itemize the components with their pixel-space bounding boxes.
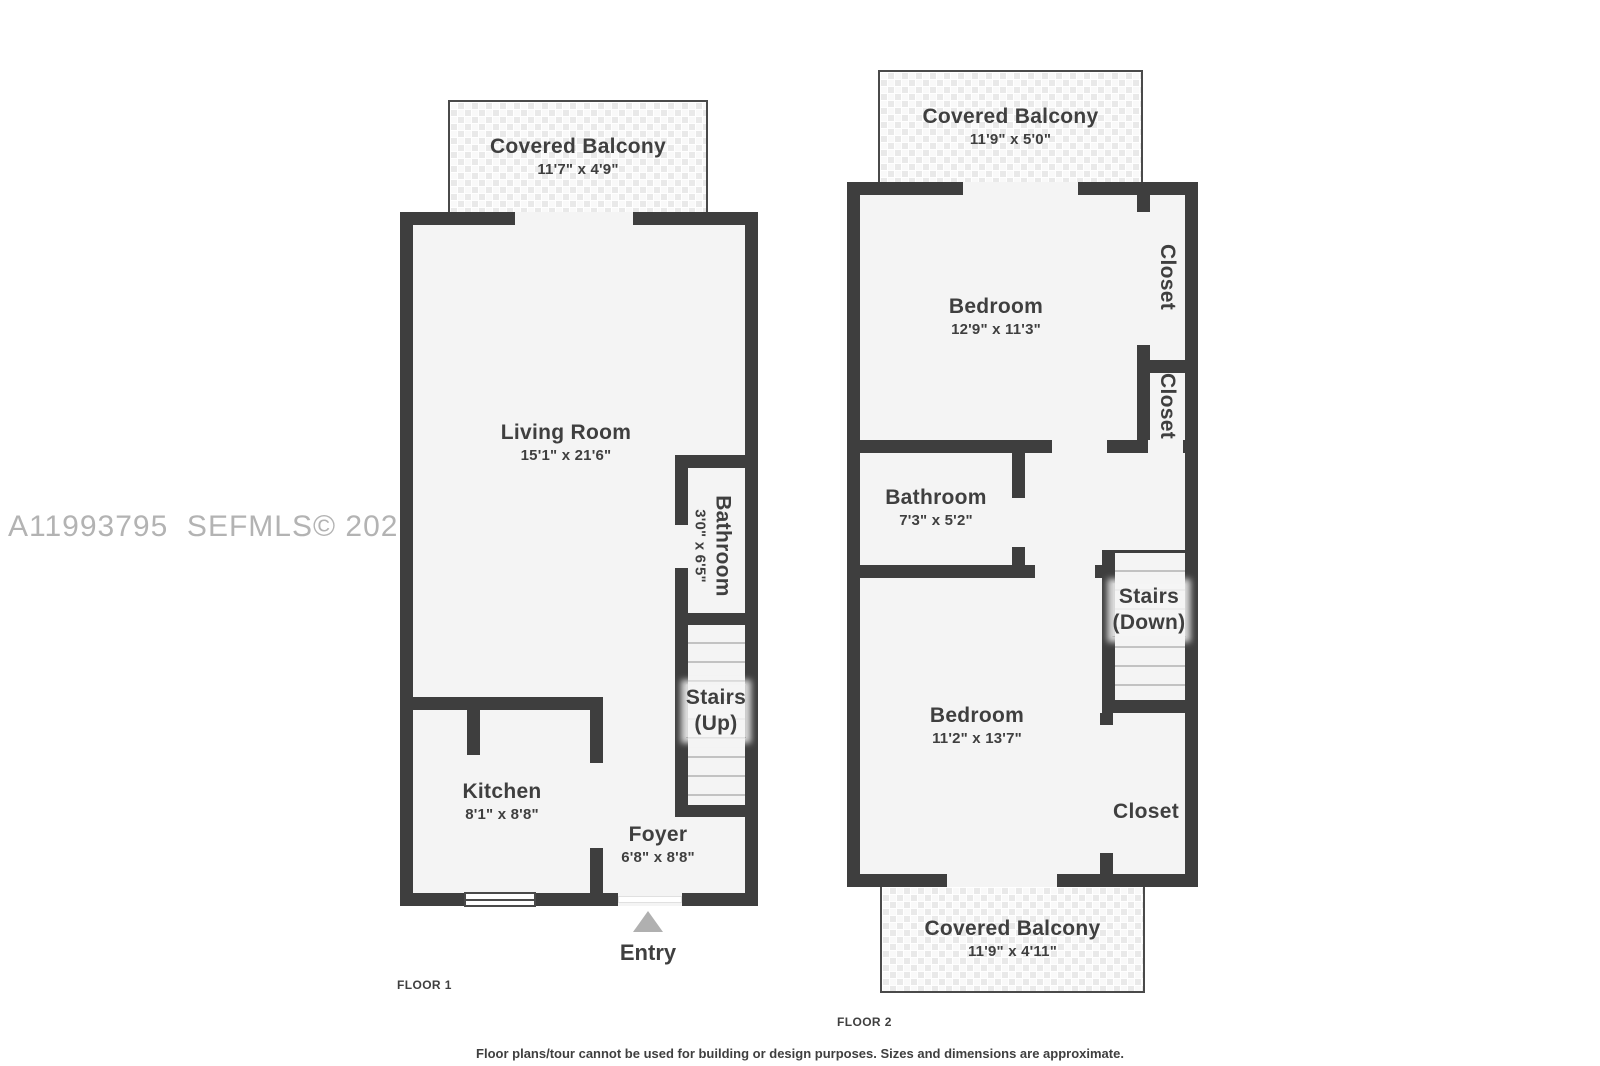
stairs-direction: (Up) bbox=[686, 711, 746, 737]
floor-plan-page: A11993795 SEFMLS© 2026 Covered Balcony 1… bbox=[0, 0, 1600, 1066]
wall-segment bbox=[590, 697, 603, 763]
room-dims: 11'2" x 13'7" bbox=[930, 729, 1024, 749]
window-mullion bbox=[466, 899, 534, 901]
room-stairs-up: Stairs (Up) bbox=[686, 685, 746, 738]
room-name: Closet bbox=[1113, 799, 1179, 825]
stairs-direction: (Down) bbox=[1113, 610, 1186, 636]
wall-segment bbox=[847, 874, 947, 887]
wall-segment bbox=[1100, 713, 1113, 725]
wall-segment bbox=[1102, 700, 1198, 713]
room-closet-bottom: Closet bbox=[1113, 799, 1179, 825]
wall-segment bbox=[1137, 360, 1198, 373]
entry-arrow-icon bbox=[633, 911, 663, 932]
wall-segment bbox=[1078, 182, 1198, 195]
wall-segment bbox=[675, 455, 688, 525]
room-dims: 12'9" x 11'3" bbox=[949, 320, 1043, 340]
entry-label: Entry bbox=[620, 940, 676, 966]
room-dims: 8'1" x 8'8" bbox=[462, 805, 541, 825]
wall-segment bbox=[633, 212, 758, 225]
room-closet-middle: Closet bbox=[1154, 373, 1180, 439]
entry-threshold bbox=[618, 896, 682, 903]
room-name: Bedroom bbox=[949, 294, 1043, 320]
wall-segment bbox=[400, 212, 515, 225]
wall-segment bbox=[847, 440, 1052, 453]
floor1-covered-balcony: Covered Balcony 11'7" x 4'9" bbox=[448, 100, 708, 212]
room-name: Covered Balcony bbox=[490, 134, 666, 160]
wall-segment bbox=[847, 565, 1035, 578]
wall-segment bbox=[1137, 195, 1150, 212]
wall-segment bbox=[847, 182, 963, 195]
room-dims: 6'8" x 8'8" bbox=[621, 848, 695, 868]
floor2-tag: FLOOR 2 bbox=[837, 1015, 892, 1029]
wall-segment bbox=[400, 893, 468, 906]
floor2-covered-balcony-top: Covered Balcony 11'9" x 5'0" bbox=[878, 70, 1143, 182]
room-bedroom-bottom: Bedroom 11'2" x 13'7" bbox=[930, 703, 1024, 750]
wall-segment bbox=[682, 893, 758, 906]
room-dims: 11'9" x 4'11" bbox=[968, 942, 1057, 962]
room-living-room: Living Room 15'1" x 21'6" bbox=[501, 420, 631, 467]
room-name: Living Room bbox=[501, 420, 631, 446]
room-name: Bedroom bbox=[930, 703, 1024, 729]
floor2-interior bbox=[847, 182, 1198, 887]
room-name: Covered Balcony bbox=[924, 916, 1100, 942]
floor2-covered-balcony-bottom: Covered Balcony 11'9" x 4'11" bbox=[880, 887, 1145, 993]
mls-watermark: A11993795 SEFMLS© 2026 bbox=[8, 510, 416, 544]
room-name: Covered Balcony bbox=[922, 104, 1098, 130]
wall-segment bbox=[1183, 440, 1198, 453]
room-name: Kitchen bbox=[462, 779, 541, 805]
wall-segment bbox=[1115, 550, 1185, 553]
wall-segment bbox=[1100, 853, 1113, 875]
wall-segment bbox=[1185, 182, 1198, 887]
wall-segment bbox=[467, 710, 480, 755]
room-dims: 15'1" x 21'6" bbox=[501, 446, 631, 466]
room-name: Bathroom bbox=[885, 485, 987, 511]
room-dims: 11'9" x 5'0" bbox=[970, 130, 1051, 150]
wall-segment bbox=[400, 697, 602, 710]
room-name: Bathroom bbox=[709, 495, 735, 597]
floor1-tag: FLOOR 1 bbox=[397, 978, 452, 992]
room-name: Stairs bbox=[686, 685, 746, 711]
wall-segment bbox=[1137, 345, 1150, 360]
room-closet-top: Closet bbox=[1154, 244, 1180, 310]
room-name: Foyer bbox=[621, 822, 695, 848]
wall-segment bbox=[1057, 874, 1198, 887]
wall-segment bbox=[675, 613, 758, 625]
wall-segment bbox=[745, 212, 758, 906]
wall-segment bbox=[532, 893, 618, 906]
room-bathroom: Bathroom 3'0" x 6'5" bbox=[689, 495, 736, 597]
wall-segment bbox=[675, 805, 758, 817]
disclaimer-text: Floor plans/tour cannot be used for buil… bbox=[476, 1046, 1124, 1061]
wall-segment bbox=[1107, 440, 1148, 453]
room-name: Closet bbox=[1154, 244, 1180, 310]
wall-segment bbox=[1137, 373, 1150, 440]
window bbox=[464, 892, 536, 907]
wall-segment bbox=[400, 212, 413, 906]
wall-segment bbox=[590, 848, 603, 893]
room-bedroom-top: Bedroom 12'9" x 11'3" bbox=[949, 294, 1043, 341]
room-foyer: Foyer 6'8" x 8'8" bbox=[621, 822, 695, 869]
room-dims: 3'0" x 6'5" bbox=[689, 495, 709, 597]
room-stairs-down: Stairs (Down) bbox=[1113, 584, 1186, 637]
room-name: Closet bbox=[1154, 373, 1180, 439]
room-bathroom2: Bathroom 7'3" x 5'2" bbox=[885, 485, 987, 532]
wall-segment bbox=[1012, 453, 1025, 498]
wall-segment bbox=[847, 182, 860, 887]
room-name: Stairs bbox=[1113, 584, 1186, 610]
room-kitchen: Kitchen 8'1" x 8'8" bbox=[462, 779, 541, 826]
room-dims: 7'3" x 5'2" bbox=[885, 511, 987, 531]
room-dims: 11'7" x 4'9" bbox=[537, 160, 618, 180]
